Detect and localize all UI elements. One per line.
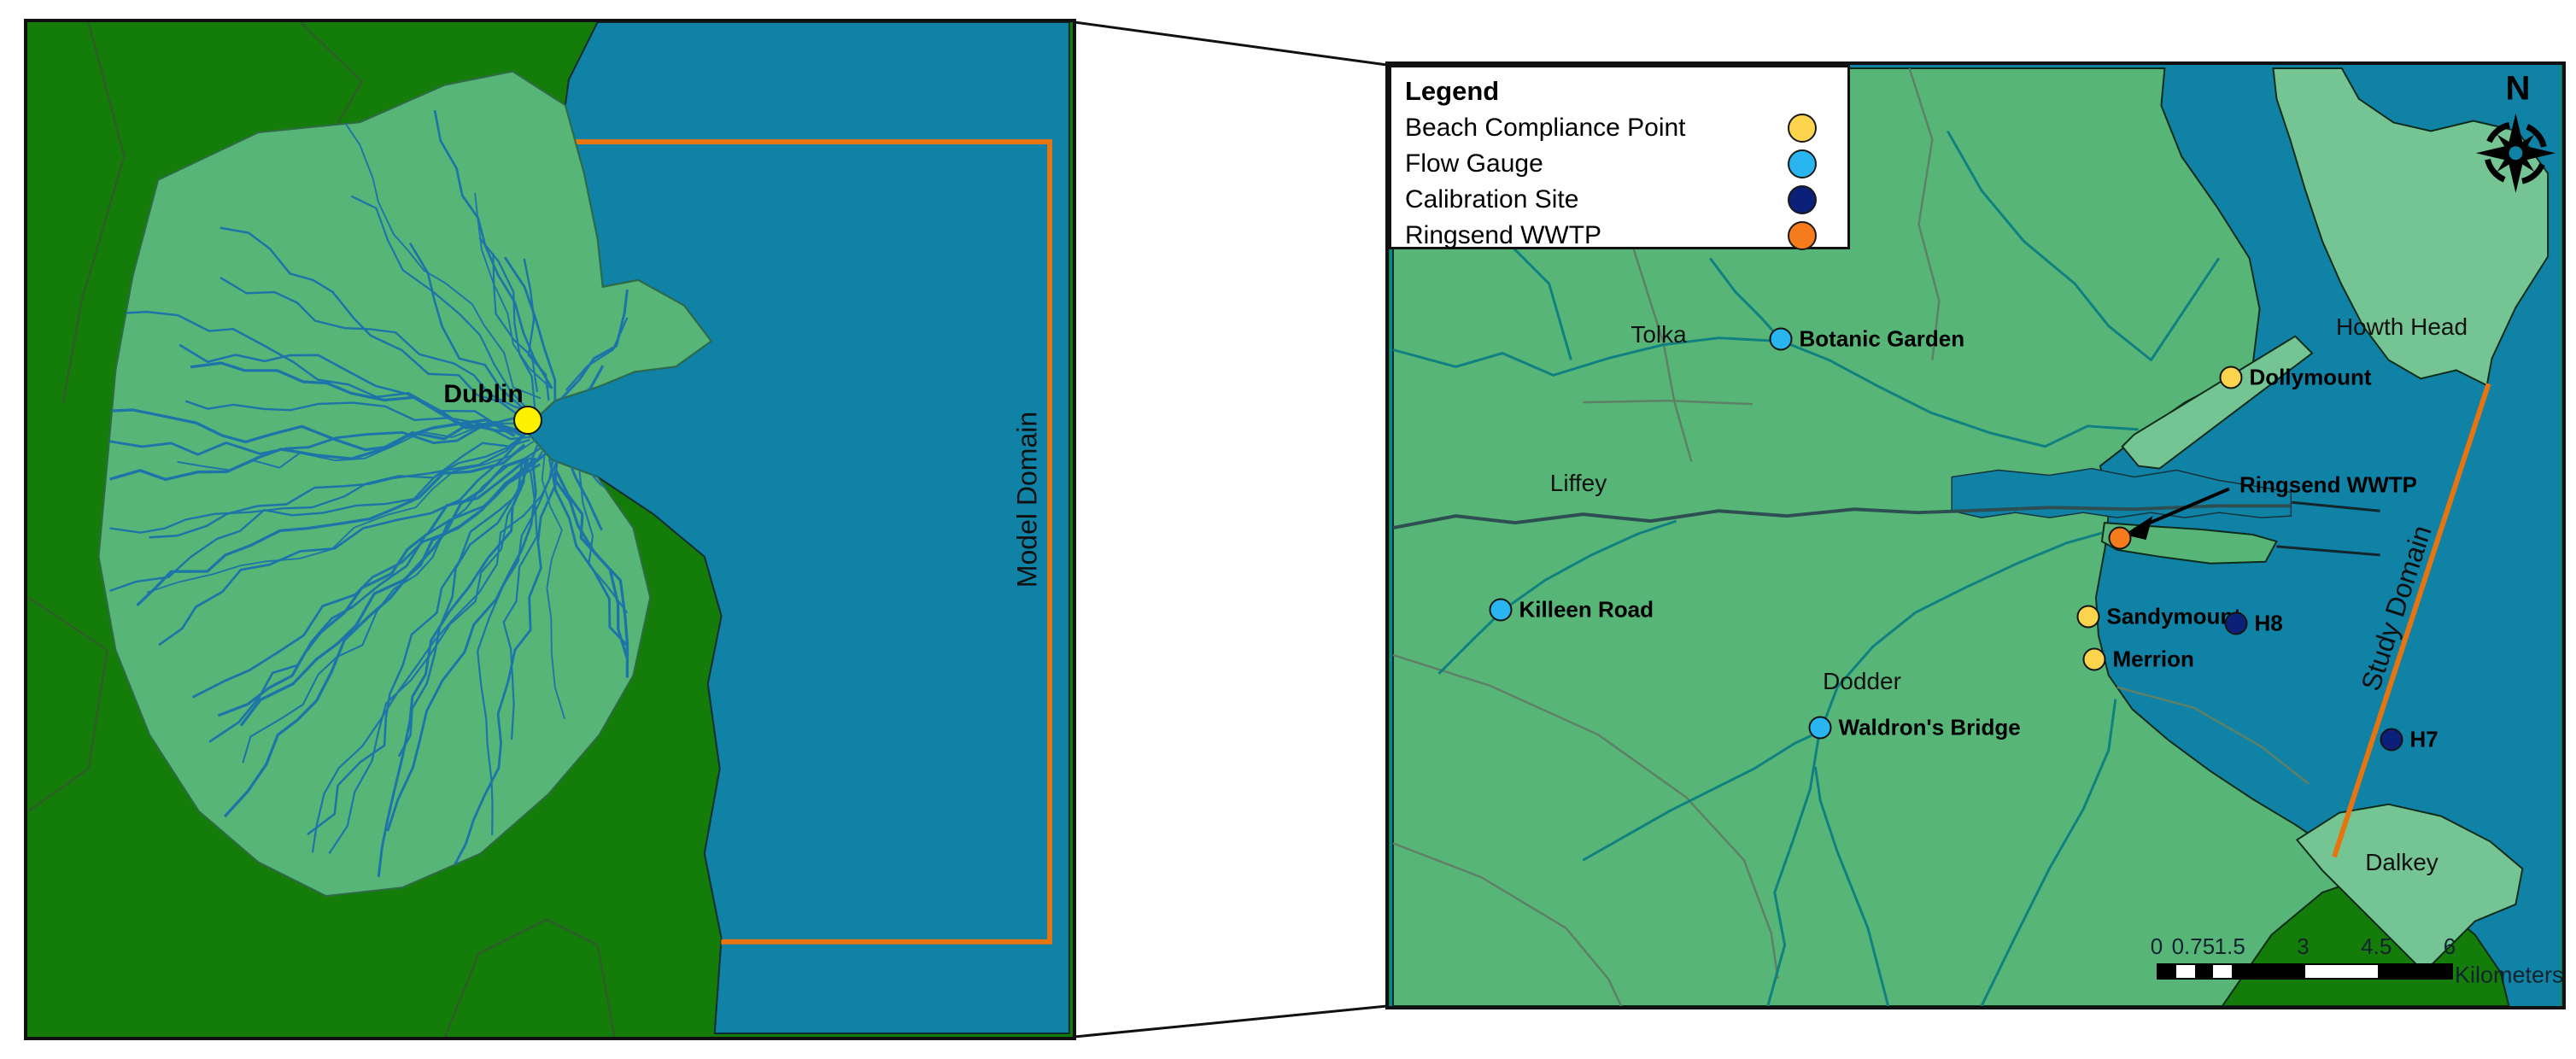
flow-legend-icon — [1788, 149, 1817, 178]
beach-legend-icon — [1788, 114, 1817, 143]
legend-item: Calibration Site — [1405, 182, 1835, 218]
legend-item: Beach Compliance Point — [1405, 110, 1835, 146]
legend-item-label: Calibration Site — [1405, 185, 1788, 214]
legend-item-label: Flow Gauge — [1405, 149, 1788, 178]
calibration-legend-icon — [1788, 185, 1817, 214]
legend-item-label: Beach Compliance Point — [1405, 114, 1788, 143]
legend-item-label: Ringsend WWTP — [1405, 221, 1788, 250]
overview-map-art — [27, 22, 1073, 1037]
legend-item: Flow Gauge — [1405, 146, 1835, 182]
legend-title: Legend — [1405, 76, 1835, 107]
overview-map-panel — [24, 19, 1076, 1040]
legend: Legend Beach Compliance PointFlow GaugeC… — [1389, 65, 1850, 249]
legend-item: Ringsend WWTP — [1405, 218, 1835, 254]
wwtp-legend-icon — [1788, 221, 1817, 250]
